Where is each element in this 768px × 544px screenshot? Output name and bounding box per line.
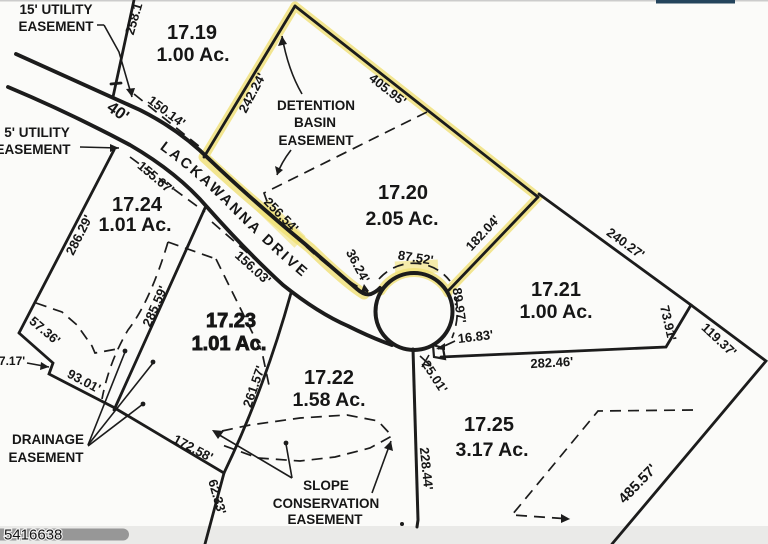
svg-text:1.01 Ac.: 1.01 Ac. [99, 214, 172, 236]
svg-text:1.58 Ac.: 1.58 Ac. [293, 389, 366, 411]
svg-text:15' UTILITY: 15' UTILITY [20, 2, 93, 17]
svg-text:EASEMENT: EASEMENT [18, 19, 94, 34]
svg-text:17.21: 17.21 [531, 279, 581, 301]
svg-text:EASEMENT: EASEMENT [287, 512, 363, 527]
svg-text:17.20: 17.20 [378, 182, 428, 204]
svg-text:1.00 Ac.: 1.00 Ac. [520, 301, 593, 323]
svg-text:5' UTILITY: 5' UTILITY [4, 125, 69, 140]
svg-text:17.24: 17.24 [112, 194, 163, 216]
svg-text:DRAINAGE: DRAINAGE [12, 432, 84, 447]
svg-text:SLOPE: SLOPE [303, 478, 349, 493]
svg-text:EASEMENT: EASEMENT [8, 450, 84, 465]
svg-text:5416638: 5416638 [4, 527, 62, 544]
svg-text:1.01 Ac.: 1.01 Ac. [192, 333, 267, 355]
svg-text:282.46': 282.46' [530, 354, 574, 371]
svg-text:17.22: 17.22 [304, 367, 354, 389]
svg-text:1.00 Ac.: 1.00 Ac. [157, 44, 230, 66]
svg-text:2.05 Ac.: 2.05 Ac. [366, 208, 439, 230]
svg-text:DETENTION: DETENTION [277, 98, 355, 113]
svg-text:BASIN: BASIN [294, 115, 336, 130]
svg-text:17.19: 17.19 [167, 22, 217, 44]
svg-text:3.17 Ac.: 3.17 Ac. [456, 439, 529, 461]
svg-text:EASEMENT: EASEMENT [0, 142, 71, 157]
svg-text:7.17': 7.17' [0, 354, 25, 368]
svg-text:17.25: 17.25 [464, 414, 514, 436]
svg-text:CONSERVATION: CONSERVATION [273, 496, 380, 511]
svg-text:EASEMENT: EASEMENT [278, 133, 354, 148]
svg-text:17.23: 17.23 [206, 310, 256, 332]
